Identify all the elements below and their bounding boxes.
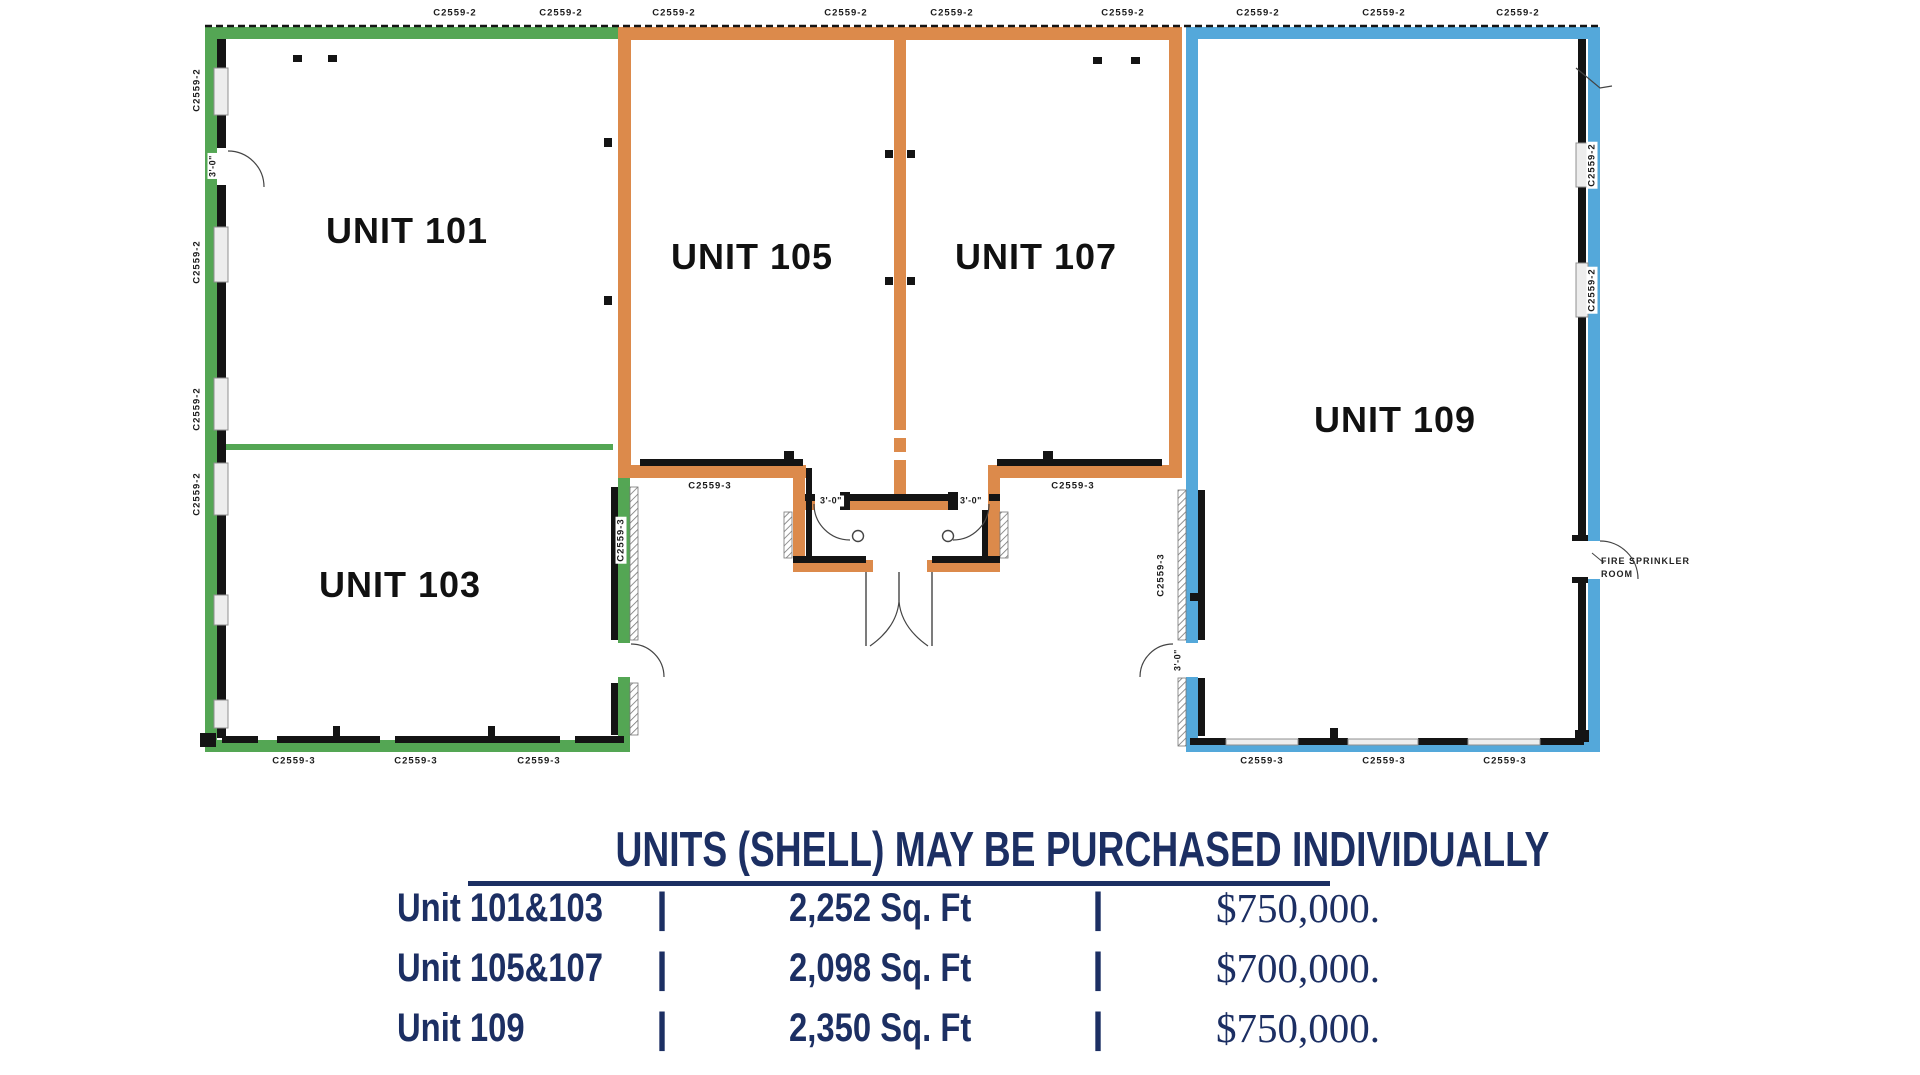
wall-ticks	[293, 55, 1200, 601]
keynote-label: C2559-2	[1234, 8, 1281, 19]
pricing-separator: |	[650, 942, 674, 994]
unit-103-label: UNIT 103	[319, 564, 481, 606]
pricing-row: Unit 109 | 2,350 Sq. Ft | $750,000.	[0, 1002, 1920, 1054]
pricing-row: Unit 101&103 | 2,252 Sq. Ft | $750,000.	[0, 882, 1920, 934]
keynote-label: C2559-2	[192, 385, 203, 432]
pricing-separator: |	[650, 1002, 674, 1054]
keynote-label: C2559-2	[431, 8, 478, 19]
pricing-price: $750,000.	[1160, 882, 1380, 934]
blue-bottom-windows	[1226, 739, 1540, 745]
fire-sprinkler-room-note: FIRE SPRINKLER ROOM	[1601, 555, 1690, 581]
keynote-label: C2559-3	[1238, 756, 1285, 767]
pricing-separator: |	[1086, 1002, 1110, 1054]
keynote-label: C2559-3	[1049, 481, 1096, 492]
keynote-label: C2559-3	[270, 756, 317, 767]
door-dimension-label: 3'-0"	[958, 496, 984, 507]
keynote-label: C2559-2	[537, 8, 584, 19]
fire-sprinkler-note-line1: FIRE SPRINKLER	[1601, 555, 1690, 568]
keynote-label: C2559-3	[616, 516, 627, 563]
keynote-label: C2559-3	[686, 481, 733, 492]
unit-105-107-bottom-walls	[640, 451, 1162, 466]
unit-109-label: UNIT 109	[1314, 399, 1476, 441]
keynote-label: C2559-3	[1360, 756, 1407, 767]
entry-double-door	[866, 572, 932, 646]
walkway-side-walls	[611, 487, 1205, 736]
vestibule-walls-black	[793, 468, 1000, 563]
pricing-separator: |	[1086, 882, 1110, 934]
unit-101-label: UNIT 101	[326, 210, 488, 252]
keynote-label: C2559-2	[1360, 8, 1407, 19]
keynote-label: C2559-2	[192, 238, 203, 285]
keynote-label: C2559-2	[192, 66, 203, 113]
pricing-unit-name: Unit 109	[397, 1002, 525, 1054]
keynote-label: C2559-2	[928, 8, 975, 19]
door-dimension-label: 3'-0"	[208, 153, 219, 179]
keynote-label: C2559-3	[392, 756, 439, 767]
pricing-unit-name: Unit 101&103	[397, 882, 603, 934]
pricing-area: 2,252 Sq. Ft	[789, 882, 971, 934]
pricing-title: UNITS (SHELL) MAY BE PURCHASED INDIVIDUA…	[468, 824, 1330, 886]
keynote-label: C2559-3	[1481, 756, 1528, 767]
keynote-label: C2559-2	[822, 8, 869, 19]
unit-105-label: UNIT 105	[671, 236, 833, 278]
pricing-price: $700,000.	[1160, 942, 1380, 994]
keynote-label: C2559-2	[192, 470, 203, 517]
keynote-label: C2559-2	[1587, 141, 1598, 188]
door-dimension-label: 3'-0"	[818, 496, 844, 507]
keynote-label: C2559-3	[515, 756, 562, 767]
green-bottom-wall	[222, 726, 624, 743]
fire-sprinkler-note-line2: ROOM	[1601, 568, 1690, 581]
keynote-label: C2559-2	[1099, 8, 1146, 19]
keynote-label: C2559-2	[650, 8, 697, 19]
pricing-separator: |	[1086, 942, 1110, 994]
keynote-label: C2559-2	[1587, 266, 1598, 313]
unit-107-label: UNIT 107	[955, 236, 1117, 278]
pricing-row: Unit 105&107 | 2,098 Sq. Ft | $700,000.	[0, 942, 1920, 994]
keynote-label: C2559-2	[1494, 8, 1541, 19]
left-wall-door	[228, 151, 264, 187]
pricing-area: 2,350 Sq. Ft	[789, 1002, 971, 1054]
walkway-glazing-hatch	[630, 487, 1186, 746]
flyer-page: UNIT 101 UNIT 103 UNIT 105 UNIT 107 UNIT…	[0, 0, 1920, 1075]
pricing-price: $750,000.	[1160, 1002, 1380, 1054]
pricing-area: 2,098 Sq. Ft	[789, 942, 971, 994]
pricing-separator: |	[650, 882, 674, 934]
pricing-title-text: UNITS (SHELL) MAY BE PURCHASED INDIVIDUA…	[615, 824, 1549, 876]
walkway-side-doors	[631, 644, 1173, 677]
door-dimension-label: 3'-0"	[1173, 647, 1184, 673]
keynote-label: C2559-3	[1156, 551, 1167, 598]
pricing-unit-name: Unit 105&107	[397, 942, 603, 994]
